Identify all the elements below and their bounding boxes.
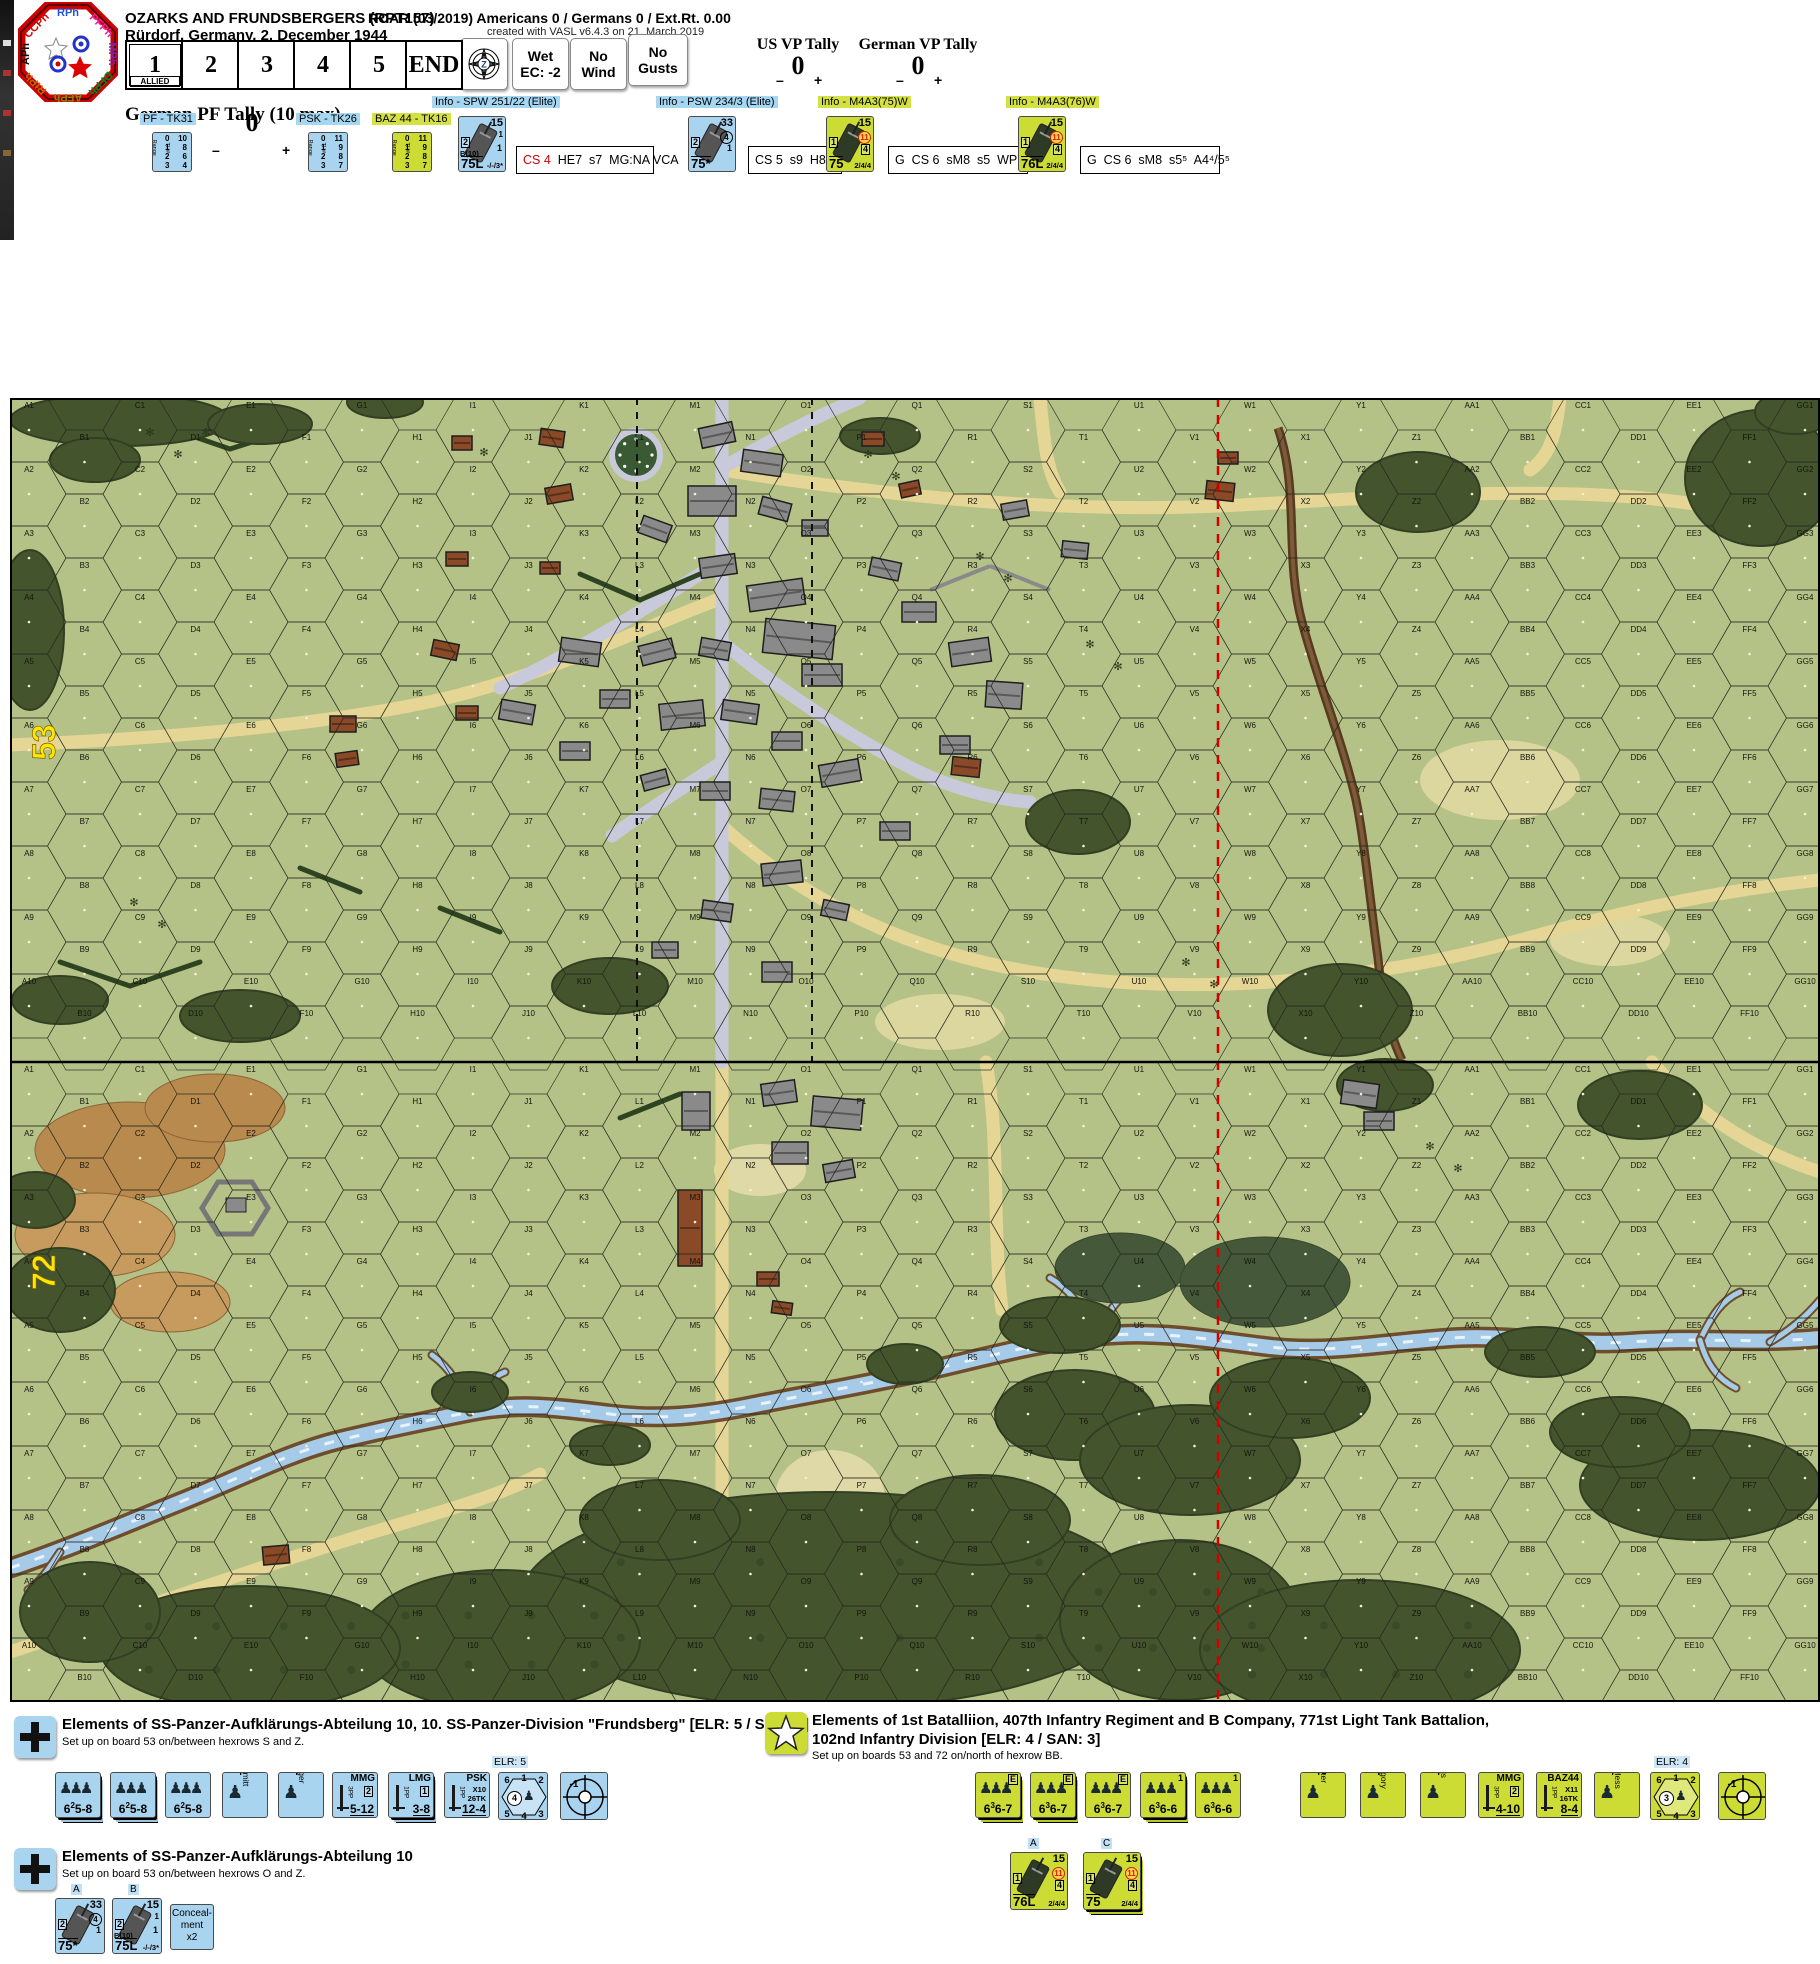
concealment-text: Conceal- bbox=[171, 1909, 213, 1919]
hex-label: H6 bbox=[412, 753, 423, 762]
sniper-counter[interactable]: -1 bbox=[560, 1772, 608, 1820]
us-elr-note: ELR: 4 bbox=[1654, 1756, 1690, 1768]
hex-label: G10 bbox=[354, 977, 370, 986]
hex-label: DD7 bbox=[1630, 817, 1647, 826]
forest bbox=[580, 1480, 740, 1560]
concealment-text: ment bbox=[171, 1921, 213, 1931]
turn-cell-end[interactable]: END bbox=[405, 40, 463, 90]
hex-label: E2 bbox=[246, 465, 256, 474]
hex-label: T3 bbox=[1079, 1225, 1089, 1234]
hex-label: I1 bbox=[470, 401, 477, 410]
turn-cell-label: 5 bbox=[373, 52, 385, 79]
hex-label: R6 bbox=[967, 1417, 978, 1426]
hex-label: W6 bbox=[1244, 721, 1257, 730]
hex-label: W1 bbox=[1244, 401, 1257, 410]
hex-label: X2 bbox=[1301, 1161, 1311, 1170]
hex-label: R5 bbox=[967, 689, 978, 698]
hex-label: U4 bbox=[1134, 593, 1145, 602]
hex-label: W4 bbox=[1244, 1257, 1257, 1266]
ordnance-counter-pf[interactable]: RangeTH#010182634 bbox=[152, 132, 192, 172]
hex-label: GG9 bbox=[1797, 913, 1814, 922]
german1-title: Elements of SS-Panzer-Aufklärungs-Abteil… bbox=[62, 1716, 809, 1733]
hex-label: G7 bbox=[357, 785, 368, 794]
vehicle-stats-text: G CS 6 sM8 s5⁵ A4⁴/5⁵ bbox=[1087, 153, 1230, 167]
hex-label: R3 bbox=[967, 561, 978, 570]
vehicle-top-value: 15 bbox=[1126, 1854, 1138, 1865]
hex-label: H2 bbox=[412, 1161, 423, 1170]
hex-label: J2 bbox=[524, 1161, 533, 1170]
hex-label: B2 bbox=[80, 1161, 90, 1170]
hex-label: S7 bbox=[1023, 785, 1033, 794]
vehicle-info-counter[interactable]: 15112B(10)75L-/-/3* bbox=[458, 116, 506, 172]
hex-label: DD8 bbox=[1630, 1545, 1647, 1554]
vehicle-mid-value-2: 1 bbox=[497, 144, 502, 153]
hex-label: B4 bbox=[80, 625, 90, 634]
squad-counter[interactable]: ♟♟♟625-8 bbox=[165, 1772, 211, 1818]
hex-label: D6 bbox=[190, 753, 201, 762]
phase-wheel[interactable]: RPhPFPhMPhDFPhAFPhRtPhAPhCCPh bbox=[18, 2, 118, 102]
hex-label: EE8 bbox=[1686, 1513, 1702, 1522]
hex-label: X9 bbox=[1301, 945, 1311, 954]
hex-label: EE5 bbox=[1686, 657, 1702, 666]
hex-label: D2 bbox=[190, 497, 201, 506]
hex-label: U10 bbox=[1132, 1641, 1147, 1650]
vehicle-stats-text: CS 5 s9 H8 bbox=[755, 153, 826, 167]
orchard-tree-icon: ✻ bbox=[891, 471, 900, 483]
setup-tank-counter[interactable]: 151141752/4/4 bbox=[1083, 1852, 1141, 1910]
hex-label: Y9 bbox=[1356, 1577, 1366, 1586]
hex-label: E3 bbox=[246, 1193, 256, 1202]
hex-label: G5 bbox=[357, 657, 368, 666]
weather-line2: Wind bbox=[581, 64, 615, 80]
hex-label: F4 bbox=[302, 625, 312, 634]
hex-label: BB2 bbox=[1520, 497, 1536, 506]
hex-label: R9 bbox=[967, 1609, 978, 1618]
hex-label: G4 bbox=[357, 593, 368, 602]
squad-counter[interactable]: E♟♟♟636-7 bbox=[1030, 1772, 1076, 1818]
hex-label: M10 bbox=[687, 977, 703, 986]
hex-label: EE8 bbox=[1686, 849, 1702, 858]
hex-label: DD3 bbox=[1630, 1225, 1647, 1234]
hex-label: E10 bbox=[244, 1641, 259, 1650]
hex-label: A1 bbox=[24, 401, 34, 410]
hex-label: P5 bbox=[857, 1353, 867, 1362]
hex-label: CC5 bbox=[1575, 657, 1592, 666]
hex-label: BB6 bbox=[1520, 1417, 1536, 1426]
soldier-figures: ♟♟♟ bbox=[1089, 1781, 1120, 1796]
weather-button-ec[interactable]: WetEC: -2 bbox=[512, 38, 569, 90]
hex-label: U3 bbox=[1134, 1193, 1145, 1202]
turn-cell-5[interactable]: 5 bbox=[349, 40, 409, 90]
turn-cell-3[interactable]: 3 bbox=[237, 40, 297, 90]
weather-button-wind[interactable]: NoWind bbox=[570, 38, 627, 90]
squad-counter[interactable]: E♟♟♟636-7 bbox=[975, 1772, 1021, 1818]
hex-label: FF1 bbox=[1742, 1097, 1757, 1106]
elr-hex-counter[interactable]: 6123453♟ bbox=[1650, 1772, 1700, 1820]
sw-usage-number: 2 bbox=[1510, 1786, 1519, 1797]
hex-label: U10 bbox=[1132, 977, 1147, 986]
hex-corner-number: 4 bbox=[1673, 1811, 1679, 1820]
hex-label: U5 bbox=[1134, 657, 1145, 666]
vehicle-top-value: 15 bbox=[859, 118, 871, 129]
leader-counter[interactable]: ♟Gregory9-1 bbox=[1360, 1772, 1406, 1818]
hex-label: T4 bbox=[1079, 625, 1089, 634]
phase-label-rph: RPh bbox=[57, 7, 79, 19]
support-weapon-counter-baz44[interactable]: BAZ441PPX1116TK8-4 bbox=[1536, 1772, 1582, 1818]
leader-counter[interactable]: ♟Parker9-2 bbox=[1300, 1772, 1346, 1818]
hex-label: F9 bbox=[302, 945, 312, 954]
soldier-figures: ♟ bbox=[1365, 1783, 1378, 1801]
hex-label: EE4 bbox=[1686, 1257, 1702, 1266]
hex-label: H10 bbox=[410, 1009, 425, 1018]
hex-label: I3 bbox=[470, 1193, 477, 1202]
vehicle-extra: -/-/3* bbox=[487, 162, 503, 170]
hex-label: BB2 bbox=[1520, 1161, 1536, 1170]
hex-label: K1 bbox=[579, 401, 589, 410]
hex-label: V8 bbox=[1190, 1545, 1200, 1554]
hex-label: G10 bbox=[354, 1641, 370, 1650]
turn-cell-label: 4 bbox=[317, 52, 329, 79]
hex-label: J3 bbox=[524, 1225, 533, 1234]
hex-label: AA6 bbox=[1464, 1385, 1480, 1394]
hex-label: H6 bbox=[412, 1417, 423, 1426]
turn-cell-4[interactable]: 4 bbox=[293, 40, 353, 90]
hex-label: FF10 bbox=[1740, 1673, 1759, 1682]
hex-label: N4 bbox=[745, 625, 756, 634]
hex-label: Q5 bbox=[912, 1321, 923, 1330]
hex-label: Z4 bbox=[1412, 1289, 1422, 1298]
hex-label: S1 bbox=[1023, 1065, 1033, 1074]
hex-label: EE10 bbox=[1684, 1641, 1704, 1650]
hex-label: V9 bbox=[1190, 945, 1200, 954]
sw-name: LMG bbox=[409, 1774, 431, 1784]
concealment-counter[interactable]: Conceal-mentx2 bbox=[170, 1904, 214, 1950]
hex-label: E6 bbox=[246, 1385, 256, 1394]
us-vp-minus-button[interactable]: – bbox=[776, 72, 784, 88]
hex-corner-number: 5 bbox=[504, 1809, 510, 1820]
hex-label: Q2 bbox=[912, 1129, 923, 1138]
hex-label: K6 bbox=[579, 721, 589, 730]
orchard-tree-icon: ✻ bbox=[1003, 573, 1012, 585]
hex-label: M10 bbox=[687, 1641, 703, 1650]
hex-label: B9 bbox=[80, 945, 90, 954]
hex-label: C3 bbox=[135, 529, 146, 538]
weather-line1: Wet bbox=[528, 48, 553, 64]
pf-tally-minus-button[interactable]: – bbox=[212, 142, 220, 158]
hex-label: AA9 bbox=[1464, 1577, 1480, 1586]
hex-label: S4 bbox=[1023, 593, 1033, 602]
hex-label: CC4 bbox=[1575, 1257, 1592, 1266]
hex-label: P6 bbox=[857, 1417, 867, 1426]
th-value: 6 bbox=[183, 153, 187, 161]
hex-label: Z5 bbox=[1412, 689, 1422, 698]
hex-label: DD6 bbox=[1630, 753, 1647, 762]
hex-label: A4 bbox=[24, 593, 34, 602]
sniper-counter[interactable]: -1 bbox=[1718, 1772, 1766, 1820]
compass-icon: Z bbox=[466, 46, 502, 82]
support-weapon-counter-mmg[interactable]: MMG3PP25-12 bbox=[332, 1772, 378, 1818]
hex-label: FF7 bbox=[1742, 817, 1757, 826]
leader-counter[interactable]: ♟Willis8-1 bbox=[1420, 1772, 1466, 1818]
hex-corner-number: 1 bbox=[521, 1773, 527, 1784]
hex-label: EE2 bbox=[1686, 465, 1702, 474]
hex-label: Q3 bbox=[912, 529, 923, 538]
vehicle-extra: 2/4/4 bbox=[1121, 1900, 1138, 1908]
hex-label: O3 bbox=[801, 1193, 812, 1202]
support-weapon-counter-mmg[interactable]: MMG3PP24-10 bbox=[1478, 1772, 1524, 1818]
support-weapon-counter-psk[interactable]: PSK1PPX1026TK12-4 bbox=[444, 1772, 490, 1818]
hex-label: Y6 bbox=[1356, 721, 1366, 730]
hex-label: J5 bbox=[524, 1353, 533, 1362]
range-value: 0 bbox=[165, 135, 169, 143]
hex-label: F5 bbox=[302, 689, 312, 698]
setup-vehicle-counter[interactable]: 15112B(10)75L-/-/3* bbox=[112, 1898, 162, 1954]
hex-label: X8 bbox=[1301, 881, 1311, 890]
hex-label: C9 bbox=[135, 1577, 146, 1586]
hex-label: P6 bbox=[857, 753, 867, 762]
ordnance-counter-baz[interactable]: RangeTH#011192837 bbox=[392, 132, 432, 172]
soldier-figures: ♟ bbox=[523, 1789, 532, 1802]
hex-label: V2 bbox=[1190, 497, 1200, 506]
hex-label: W9 bbox=[1244, 1577, 1257, 1586]
hex-label: Y8 bbox=[1356, 849, 1366, 858]
vehicle-mid-value-1: 1 bbox=[499, 131, 503, 139]
hex-label: Z3 bbox=[1412, 1225, 1422, 1234]
vehicle-gun-caliber: 76L bbox=[1021, 156, 1043, 170]
hex-label: Q9 bbox=[912, 913, 923, 922]
turn-cell-label: 2 bbox=[205, 52, 217, 79]
hex-label: D10 bbox=[188, 1009, 203, 1018]
squad-counter[interactable]: ♟♟♟625-8 bbox=[110, 1772, 156, 1818]
hex-label: GG4 bbox=[1797, 1257, 1814, 1266]
setup-vehicle-counter[interactable]: 3341275* bbox=[55, 1898, 105, 1954]
hex-label: E8 bbox=[246, 1513, 256, 1522]
hex-label: AA8 bbox=[1464, 849, 1480, 858]
range-value: 2 bbox=[165, 153, 169, 161]
hex-label: T6 bbox=[1079, 753, 1089, 762]
squad-counter[interactable]: 1♟♟♟636-6 bbox=[1140, 1772, 1186, 1818]
us-vp-plus-button[interactable]: + bbox=[814, 72, 822, 88]
hex-label: D4 bbox=[190, 1289, 201, 1298]
hex-label: Z3 bbox=[1412, 561, 1422, 570]
vehicle-info-counter[interactable]: 151141752/4/4 bbox=[826, 116, 874, 172]
squad-factors: 625-8 bbox=[56, 1801, 100, 1816]
hex-label: CC3 bbox=[1575, 529, 1592, 538]
hex-label: D4 bbox=[190, 625, 201, 634]
hex-label: GG4 bbox=[1797, 593, 1814, 602]
hex-label: M9 bbox=[689, 913, 701, 922]
forest bbox=[10, 1172, 75, 1228]
hex-label: M2 bbox=[689, 465, 701, 474]
hex-label: F4 bbox=[302, 1289, 312, 1298]
th-value: 9 bbox=[423, 144, 427, 152]
hex-label: A2 bbox=[24, 1129, 34, 1138]
hex-label: A6 bbox=[24, 1385, 34, 1394]
hex-label: Y6 bbox=[1356, 1385, 1366, 1394]
hex-label: T1 bbox=[1079, 1097, 1089, 1106]
hex-label: H5 bbox=[412, 689, 423, 698]
leader-counter[interactable]: ♟Berger8-1 bbox=[278, 1772, 324, 1818]
vehicle-mid-value-2: 1 bbox=[727, 144, 732, 153]
hex-label: C8 bbox=[135, 1513, 146, 1522]
vehicle-info-label: Info - SPW 251/22 (Elite) bbox=[432, 96, 560, 108]
game-map[interactable]: ✻✻✻✻✻✻✻✻✻✻✻✻✻✻✻✻A1A2A3A4A5A6A7A8A9A10B1B… bbox=[10, 398, 1820, 1702]
leader-counter[interactable]: ♟Lawless9-1 bbox=[1594, 1772, 1640, 1818]
vehicle-info-counter[interactable]: 15114176L2/4/4 bbox=[1018, 116, 1066, 172]
hex-label: H4 bbox=[412, 625, 423, 634]
hex-label: CC6 bbox=[1575, 721, 1592, 730]
orchard-tree-icon: ✻ bbox=[173, 449, 182, 461]
th-value: 9 bbox=[339, 144, 343, 152]
gun-art-base bbox=[393, 1807, 405, 1809]
hex-label: F9 bbox=[302, 1609, 312, 1618]
hex-label: GG6 bbox=[1797, 721, 1814, 730]
hex-label: FF3 bbox=[1742, 1225, 1757, 1234]
hex-label: O8 bbox=[801, 1513, 812, 1522]
hex-label: Z10 bbox=[1410, 1673, 1424, 1682]
vehicle-extra: -/-/3* bbox=[143, 1944, 159, 1952]
hex-label: CC5 bbox=[1575, 1321, 1592, 1330]
hex-label: R1 bbox=[967, 433, 978, 442]
hex-label: L9 bbox=[635, 1609, 644, 1618]
hex-label: W3 bbox=[1244, 529, 1257, 538]
hex-label: O8 bbox=[801, 849, 812, 858]
hex-label: DD1 bbox=[1630, 433, 1647, 442]
hex-label: B1 bbox=[80, 433, 90, 442]
support-weapon-counter-lmg[interactable]: LMG1PP13-8 bbox=[388, 1772, 434, 1818]
setup-tank-counter[interactable]: 15114176L2/4/4 bbox=[1010, 1852, 1068, 1910]
hex-label: U4 bbox=[1134, 1257, 1145, 1266]
hex-label: O6 bbox=[801, 1385, 812, 1394]
weather-button-gusts[interactable]: NoGusts bbox=[628, 34, 688, 86]
hex-label: O9 bbox=[801, 913, 812, 922]
orchard-tree-icon: ✻ bbox=[1085, 639, 1094, 651]
hex-label: N5 bbox=[745, 1353, 756, 1362]
hex-label: I5 bbox=[470, 1321, 477, 1330]
hex-label: D9 bbox=[190, 945, 201, 954]
turn-cell-label: 3 bbox=[261, 52, 273, 79]
hex-label: V10 bbox=[1187, 1009, 1202, 1018]
squad-factors: 625-8 bbox=[166, 1801, 210, 1816]
sw-x-number: X11 bbox=[1565, 1786, 1578, 1794]
vehicle-extra: 2/4/4 bbox=[1046, 162, 1063, 170]
leader-counter[interactable]: ♟Schmitt9-1 bbox=[222, 1772, 268, 1818]
vehicle-top-value: 33 bbox=[90, 1900, 102, 1911]
hex-label: GG2 bbox=[1797, 1129, 1814, 1138]
hex-label: F1 bbox=[302, 1097, 312, 1106]
hex-label: V3 bbox=[1190, 561, 1200, 570]
sw-range-factors: 5-12 bbox=[350, 1803, 374, 1816]
hex-label: M7 bbox=[689, 785, 701, 794]
hex-label: EE4 bbox=[1686, 593, 1702, 602]
strip-speck bbox=[3, 110, 11, 116]
hex-label: DD9 bbox=[1630, 945, 1647, 954]
forest bbox=[1000, 1297, 1120, 1353]
th-value: 8 bbox=[339, 153, 343, 161]
hex-label: B6 bbox=[80, 1417, 90, 1426]
hex-label: DD10 bbox=[1628, 1673, 1649, 1682]
hex-label: Z7 bbox=[1412, 817, 1422, 826]
hex-label: A5 bbox=[24, 1321, 34, 1330]
hex-label: Y1 bbox=[1356, 1065, 1366, 1074]
turn-cell-1[interactable]: 1ALLIED bbox=[125, 40, 185, 90]
hex-corner-number: 6 bbox=[504, 1775, 509, 1786]
hex-label: C10 bbox=[133, 1641, 148, 1650]
squad-counter[interactable]: E♟♟♟636-7 bbox=[1085, 1772, 1131, 1818]
squad-factors: 636-7 bbox=[1086, 1801, 1130, 1816]
hex-label: T2 bbox=[1079, 497, 1089, 506]
hex-label: L6 bbox=[635, 1417, 644, 1426]
hex-label: H1 bbox=[412, 1097, 423, 1106]
hex-label: C1 bbox=[135, 1065, 146, 1074]
hex-label: FF6 bbox=[1742, 1417, 1757, 1426]
vehicle-extra: 2/4/4 bbox=[1048, 1900, 1065, 1908]
vehicle-left-box: 1 bbox=[1021, 137, 1030, 148]
hex-label: Q8 bbox=[912, 1513, 923, 1522]
vehicle-info-counter[interactable]: 3341275* bbox=[688, 116, 736, 172]
pf-tally-plus-button[interactable]: + bbox=[282, 142, 290, 158]
squad-factors: 636-7 bbox=[976, 1801, 1020, 1816]
hex-label: L1 bbox=[635, 1097, 644, 1106]
hex-label: BB5 bbox=[1520, 689, 1536, 698]
elr-hex-counter[interactable]: 6123454♟ bbox=[498, 1772, 548, 1820]
scenario-info-button[interactable]: Z bbox=[460, 38, 508, 90]
hex-label: F7 bbox=[302, 1481, 312, 1490]
hex-label: B10 bbox=[77, 1009, 92, 1018]
hex-label: X1 bbox=[1301, 433, 1311, 442]
german-vp-minus-button[interactable]: – bbox=[896, 72, 904, 88]
hex-label: S5 bbox=[1023, 1321, 1033, 1330]
hex-label: K1 bbox=[579, 1065, 589, 1074]
ordnance-label: PF - TK31 bbox=[140, 113, 196, 125]
hex-label: AA3 bbox=[1464, 1193, 1480, 1202]
hex-label: U6 bbox=[1134, 721, 1145, 730]
sw-pp: 1PP bbox=[458, 1786, 465, 1798]
squad-counter[interactable]: 1♟♟♟636-6 bbox=[1195, 1772, 1241, 1818]
hex-label: F6 bbox=[302, 753, 312, 762]
hex-label: Y8 bbox=[1356, 1513, 1366, 1522]
hex-label: I10 bbox=[467, 977, 479, 986]
hex-label: W9 bbox=[1244, 913, 1257, 922]
turn-cell-2[interactable]: 2 bbox=[181, 40, 241, 90]
hex-corner-number: 1 bbox=[1673, 1773, 1679, 1784]
hex-label: O5 bbox=[801, 657, 812, 666]
hex-label: GG8 bbox=[1797, 849, 1814, 858]
squad-counter[interactable]: ♟♟♟625-8 bbox=[55, 1772, 101, 1818]
hex-label: DD1 bbox=[1630, 1097, 1647, 1106]
marsh bbox=[1180, 1237, 1350, 1327]
hex-label: DD2 bbox=[1630, 497, 1647, 506]
hex-label: H9 bbox=[412, 1609, 423, 1618]
hex-label: C4 bbox=[135, 593, 146, 602]
hex-label: M6 bbox=[689, 1385, 701, 1394]
hex-label: L4 bbox=[635, 1289, 644, 1298]
hex-label: Q1 bbox=[912, 401, 923, 410]
hex-label: Q6 bbox=[912, 721, 923, 730]
hex-label: E10 bbox=[244, 977, 259, 986]
hex-label: DD6 bbox=[1630, 1417, 1647, 1426]
hex-label: F10 bbox=[300, 1009, 314, 1018]
ordnance-counter-psk[interactable]: RangeTH#011192837 bbox=[308, 132, 348, 172]
hex-label: O4 bbox=[801, 1257, 812, 1266]
hex-label: R3 bbox=[967, 1225, 978, 1234]
hex-label: E5 bbox=[246, 1321, 256, 1330]
german-vp-plus-button[interactable]: + bbox=[934, 72, 942, 88]
hex-label: Q10 bbox=[909, 1641, 925, 1650]
hex-label: BB1 bbox=[1520, 433, 1536, 442]
hex-label: V1 bbox=[1190, 433, 1200, 442]
hex-label: K5 bbox=[579, 1321, 589, 1330]
